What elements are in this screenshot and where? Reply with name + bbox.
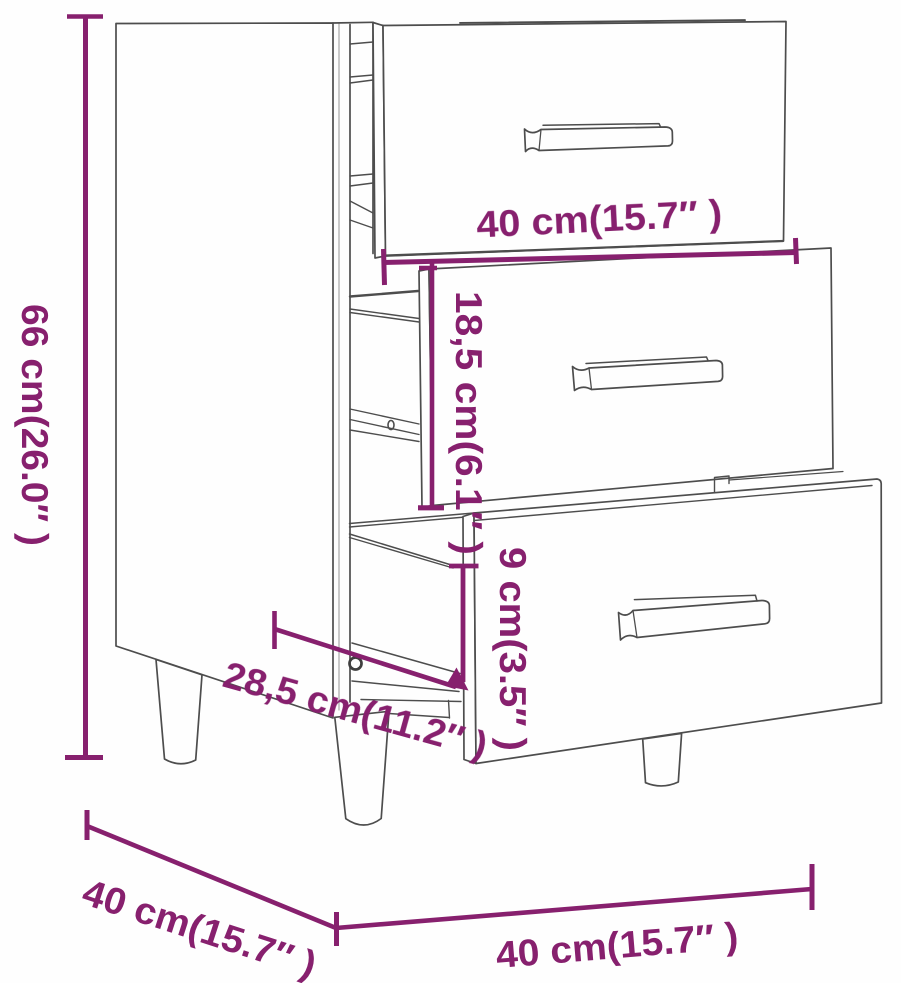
svg-text:66 cm(26.0″ ): 66 cm(26.0″ ) <box>14 304 56 546</box>
svg-text:18,5 cm(6.1″ ): 18,5 cm(6.1″ ) <box>448 291 490 555</box>
svg-text:9 cm(3.5″ ): 9 cm(3.5″ ) <box>492 547 534 751</box>
